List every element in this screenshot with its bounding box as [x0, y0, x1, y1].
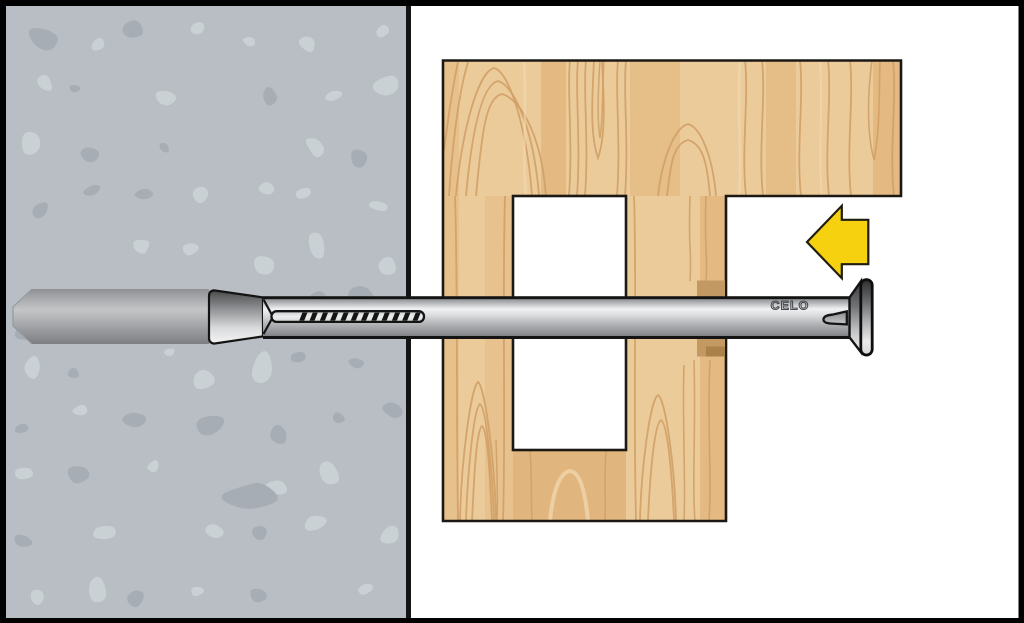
svg-text:CELO: CELO	[771, 299, 810, 313]
